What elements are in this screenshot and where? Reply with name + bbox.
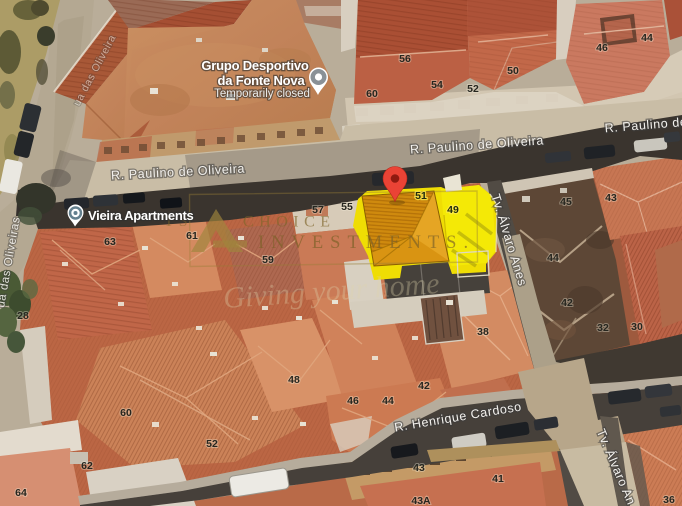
svg-text:46: 46 [596,42,608,54]
svg-text:52: 52 [467,83,479,95]
svg-text:43A: 43A [411,495,431,506]
svg-text:45: 45 [560,196,572,208]
svg-text:Vieira Apartments: Vieira Apartments [88,208,194,223]
svg-text:60: 60 [366,88,378,100]
svg-text:64: 64 [15,487,27,499]
svg-text:41: 41 [492,473,504,485]
svg-text:42: 42 [561,297,573,309]
svg-text:62: 62 [81,460,93,472]
svg-text:48: 48 [288,374,300,386]
svg-text:46: 46 [347,395,359,407]
svg-text:Grupo Desportivo: Grupo Desportivo [201,58,309,73]
svg-text:42: 42 [418,380,430,392]
svg-text:CHOICE: CHOICE [243,214,336,231]
svg-text:44: 44 [382,395,394,407]
svg-text:56: 56 [399,53,411,65]
svg-text:60: 60 [120,407,132,419]
svg-text:28: 28 [17,310,29,322]
svg-text:32: 32 [597,322,609,334]
svg-text:59: 59 [262,254,274,266]
svg-text:38: 38 [477,326,489,338]
svg-text:54: 54 [431,79,443,91]
svg-text:44: 44 [547,252,559,264]
svg-text:63: 63 [104,236,116,248]
svg-text:INVESTMENTS.: INVESTMENTS. [258,233,475,253]
svg-text:30: 30 [631,321,643,333]
svg-text:da Fonte Nova: da Fonte Nova [218,73,306,88]
svg-text:57: 57 [312,204,324,216]
svg-text:43: 43 [605,192,617,204]
svg-text:52: 52 [206,438,218,450]
svg-text:61: 61 [186,230,198,242]
svg-text:Temporarily closed: Temporarily closed [214,88,310,100]
svg-text:55: 55 [341,201,353,213]
svg-text:36: 36 [663,494,675,506]
svg-text:51: 51 [415,190,427,202]
svg-text:49: 49 [447,204,459,216]
svg-text:50: 50 [507,65,519,77]
svg-text:44: 44 [641,32,653,44]
svg-text:43: 43 [413,462,425,474]
